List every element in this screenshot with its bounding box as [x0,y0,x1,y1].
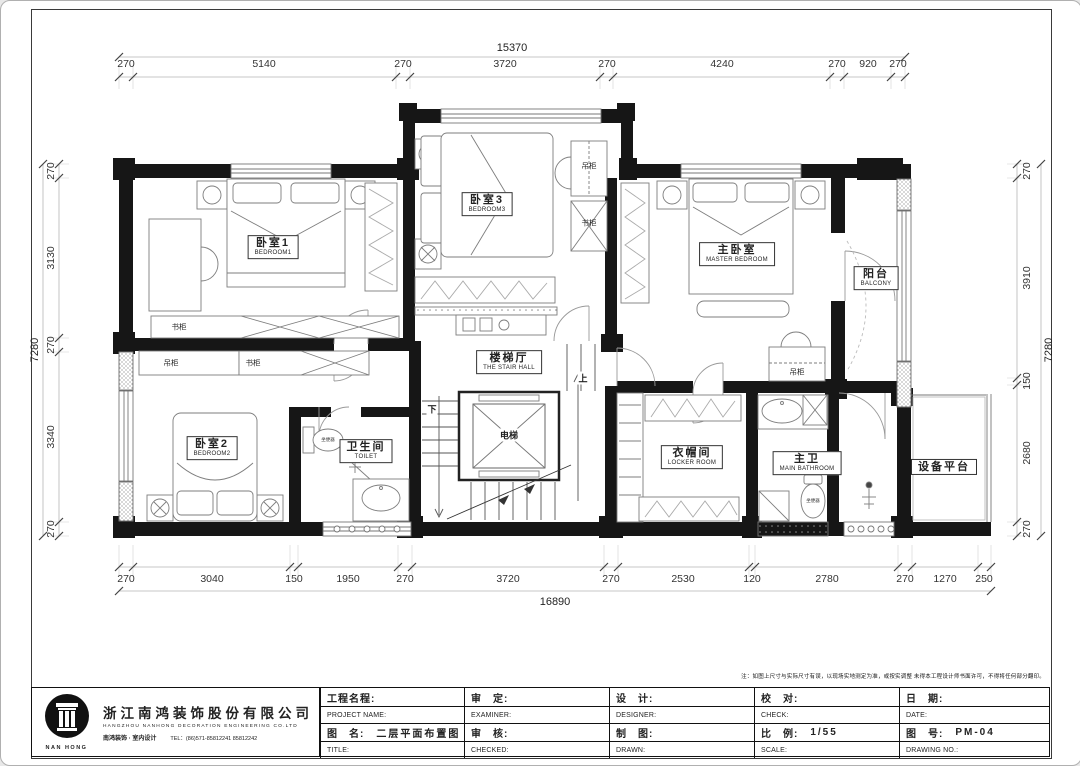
room-label-stair-hall: 楼梯厅 THE STAIR HALL [476,350,542,374]
dim-top-2: 270 [394,58,412,70]
company-logo: NAN HONG [38,693,95,751]
cell-check-cn: 校 对: [754,688,899,706]
label-stairs-up: 上 [577,372,588,385]
company-name-cn: 浙江南鸿装饰股份有限公司 [103,702,313,722]
dim-top-6: 270 [828,58,846,70]
cell-project-name-cn: 工程名程: [320,688,464,706]
dim-bot-8: 120 [743,573,761,585]
dim-bot-9: 2780 [815,573,838,585]
cell-date-cn: 日 期: [899,688,1049,706]
dim-top-0: 270 [117,58,135,70]
dim-bot-1: 3040 [200,573,223,585]
dim-left-total: 7280 [29,338,41,362]
dim-bot-6: 270 [602,573,620,585]
dim-bot-4: 270 [396,573,414,585]
cell-drawn-cn: 制 图: [609,723,754,741]
room-label-equipment-platform: 设备平台 [911,459,977,475]
company-block: NAN HONG 浙江南鸿装饰股份有限公司 HANGZHOU NANHONG D… [32,688,320,756]
room-label-toilet: 卫生间 TOILET [340,439,393,463]
cell-designer-en: DESIGNER: [609,706,754,723]
cell-check-en: CHECK: [754,706,899,723]
dim-top-8: 270 [889,58,907,70]
furniture [139,133,985,522]
revision-note: 注：如图上尺寸与实际尺寸有误，以现场实地测定为准，或按实调整 未得本工程设计师书… [741,672,1045,680]
dim-right-0: 270 [1021,162,1033,180]
room-label-locker-room: 衣帽间 LOCKER ROOM [661,445,723,469]
dim-left-1: 3130 [45,246,57,269]
label-wc-mainbath: 坐便器 [806,498,820,504]
cell-scale-en: SCALE: [754,741,899,758]
dim-top-4: 270 [598,58,616,70]
dim-left-3: 3340 [45,425,57,448]
room-label-bedroom3: 卧室3 BEDROOM3 [462,192,513,216]
label-elevator: 电梯 [498,429,520,442]
dim-right-4: 270 [1021,520,1033,538]
dim-bot-7: 2530 [671,573,694,585]
label-bookcase-1: 书柜 [172,322,187,333]
cell-drawing-no-cn: 图 号:PM-04 [899,723,1049,741]
label-hanging-cabinet-3: 吊柜 [790,367,805,378]
dim-top-3: 3720 [493,58,516,70]
room-label-master-bedroom: 主卧室 MASTER BEDROOM [699,242,775,266]
company-tel: TEL：(86)571-85812241 85812242 [170,734,257,742]
title-block: NAN HONG 浙江南鸿装饰股份有限公司 HANGZHOU NANHONG D… [31,687,1050,757]
cell-checked-en: CHECKED: [464,741,609,758]
dim-bot-total: 16890 [540,596,571,608]
dim-top-7: 920 [859,58,877,70]
cell-checked-cn: 审 核: [464,723,609,741]
dim-right-total: 7280 [1043,338,1055,362]
cell-scale-cn: 比 例:1/55 [754,723,899,741]
dim-bot-11: 1270 [933,573,956,585]
dim-left-0: 270 [45,162,57,180]
cell-examiner-cn: 审 定: [464,688,609,706]
room-label-main-bathroom: 主卫 MAIN BATHROOM [773,451,842,475]
room-label-bedroom1: 卧室1 BEDROOM1 [248,235,299,259]
logo-text: NAN HONG [38,745,95,751]
dim-top-5: 4240 [710,58,733,70]
cell-drawn-en: DRAWN: [609,741,754,758]
floor-plan-svg [1,1,1080,765]
dim-right-2: 150 [1021,372,1033,390]
dim-top-1: 5140 [252,58,275,70]
cell-project-name-en: PROJECT NAME: [320,706,464,723]
dim-left-2: 270 [45,336,57,354]
cell-date-en: DATE: [899,706,1049,723]
dim-bot-0: 270 [117,573,135,585]
cell-designer-cn: 设 计: [609,688,754,706]
label-bookcase-2: 书柜 [246,358,261,369]
dim-bot-5: 3720 [496,573,519,585]
company-tagline: 南鸿装饰 · 室内设计 [103,733,156,742]
dim-right-1: 3910 [1021,266,1033,289]
dim-bot-10: 270 [896,573,914,585]
label-hanging-cabinet-1: 吊柜 [164,358,179,369]
room-label-bedroom2: 卧室2 BEDROOM2 [187,436,238,460]
label-stairs-down: 下 [426,403,437,416]
cell-title-en: TITLE: [320,741,464,758]
room-label-balcony: 阳台 BALCONY [854,266,899,290]
nanhong-logo-icon [44,693,90,739]
dim-bot-12: 250 [975,573,993,585]
company-name-en: HANGZHOU NANHONG DECORATION ENGINEERING … [103,724,313,729]
dim-right-3: 2680 [1021,441,1033,464]
label-hanging-cabinet-2: 吊柜 [582,161,597,172]
title-block-table: 工程名程: 审 定: 设 计: 校 对: 日 期: PROJECT NAME: … [320,688,1049,756]
cell-title-cn: 图 名:二层平面布置图 [320,723,464,741]
label-bookcase-3: 书柜 [582,218,597,229]
label-wc-toilet: 坐便器 [321,437,335,443]
dim-bot-2: 150 [285,573,303,585]
cell-examiner-en: EXAMINER: [464,706,609,723]
dim-bot-3: 1950 [336,573,359,585]
dim-top-total: 15370 [497,42,528,54]
cell-drawing-no-en: DRAWING NO.: [899,741,1049,758]
dim-left-4: 270 [45,520,57,538]
drawing-sheet: 270 5140 270 3720 270 4240 270 920 270 1… [0,0,1080,766]
